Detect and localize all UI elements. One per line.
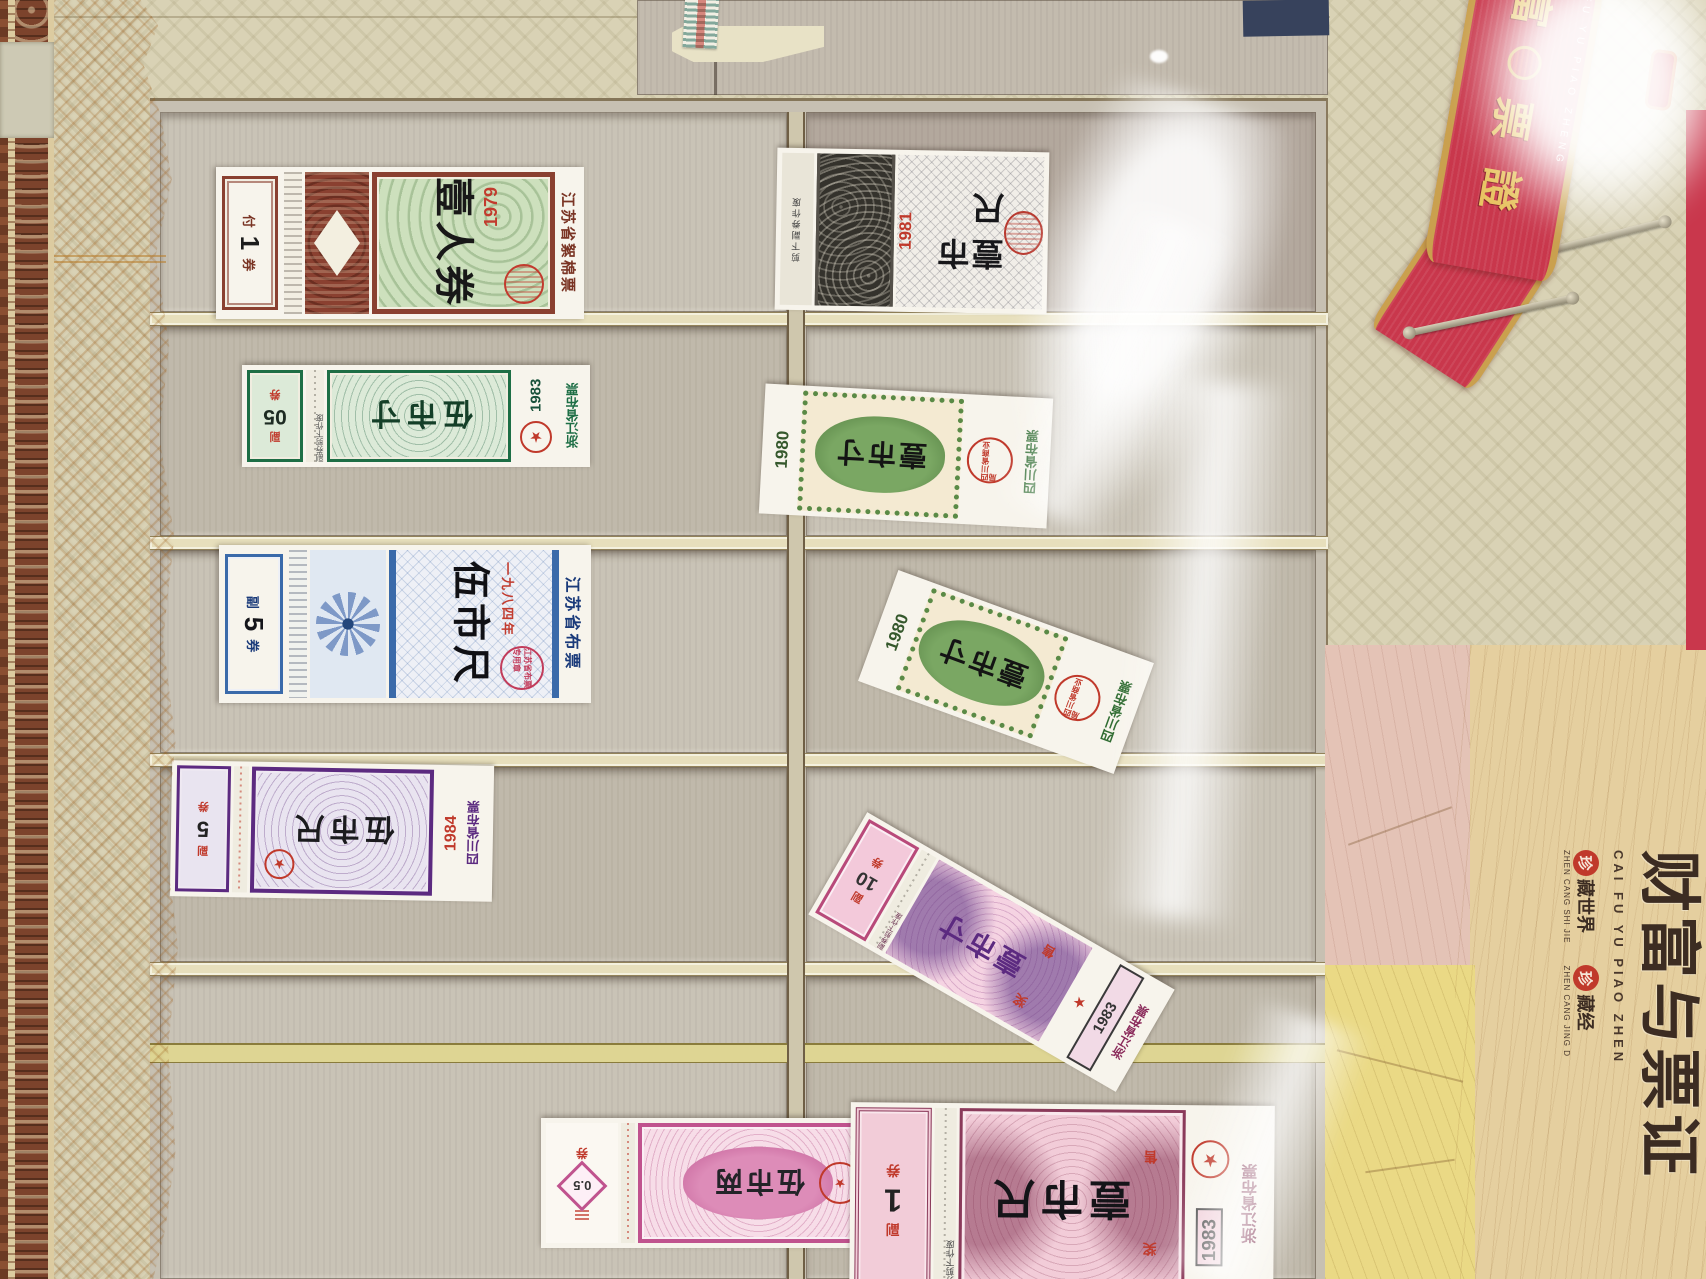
banner-character-top: 富 <box>1501 0 1568 32</box>
stub-prefix: 副 <box>270 429 281 445</box>
coupon-stub: 副 5 券 <box>225 554 283 694</box>
coupon-body: 奖 售 壹市尺 <box>958 1108 1186 1279</box>
coupon-denomination: 壹人券 <box>428 177 486 309</box>
coupon-jiangsu-cotton-1979: 江苏省絮棉票 1979 壹人券 付 1 券 <box>216 167 584 319</box>
red-seal-icon <box>1003 211 1043 256</box>
stub-prefix: 副 <box>197 843 208 859</box>
coupon-year: 1983 <box>529 379 544 412</box>
coupon-issuer: 四川省布票 <box>1024 430 1040 496</box>
coupon-denomination: 伍市寸 <box>365 394 473 438</box>
fine-print-strip: 副券剪下作废 <box>933 1108 957 1279</box>
extra-top: 奖 <box>1009 990 1030 1013</box>
coupon-issuer: 江苏省絮棉票 <box>558 172 579 314</box>
engraved-band <box>310 550 386 698</box>
coupon-year: 1980 <box>773 430 792 469</box>
reward-sale-characters: 奖 售 <box>1143 1147 1158 1259</box>
seal-text: 四川省商业局 <box>1063 676 1092 721</box>
stub-value: 1 <box>884 1182 902 1219</box>
cover-title-latin: CAI FU YU PIAO ZHEN <box>1611 850 1626 1065</box>
coupon-stub: 剪下副券作废 <box>780 153 815 306</box>
seal-column: 四川省商业局 <box>961 399 1019 522</box>
coupon-year: 1981 <box>897 212 915 250</box>
stub-value: 05 <box>263 404 286 428</box>
green-medallion: 壹市寸 <box>814 413 948 496</box>
coupon-issuer: 浙江省布票 <box>1244 1164 1261 1244</box>
collect-latin: ZHEN CANG JING D <box>1562 965 1571 1057</box>
coupon-body: 壹市尺 1981 <box>896 155 1045 310</box>
red-seal-icon: 四川省商业局 <box>1048 669 1107 728</box>
engraved-band <box>815 153 896 306</box>
border-ornate-band <box>15 0 48 1279</box>
stub-value: 1 <box>235 236 266 250</box>
coupon-issuer-column: 四川省布票 <box>1016 402 1048 523</box>
collect-text: 藏经 <box>1573 994 1599 1030</box>
coupon-denomination: 壹市尺 <box>913 185 1004 279</box>
coupon-year: 1983 <box>1091 1000 1121 1036</box>
coupon-body: 伍市寸 <box>327 370 511 462</box>
map-region-pink <box>1325 645 1470 975</box>
coupon-denomination: 壹市寸 <box>932 629 1033 698</box>
coupon-issuer-column: 浙江省布票 <box>561 370 585 462</box>
stub-prefix: 付 <box>241 215 260 228</box>
red-seal-icon: 江苏省布票专用章 <box>500 646 544 690</box>
seal-text: 四川省商业局 <box>981 439 999 482</box>
coupon-year: 1984 <box>443 815 460 851</box>
coupon-body: 江苏省布票专用章 一九八四年 伍市尺 <box>389 550 559 698</box>
coupon-issuer-column: 浙江省布票 <box>1234 1111 1270 1279</box>
ration-coupon-album-photo: 江苏省絮棉票 1979 壹人券 付 1 券 壹市尺 1981 <box>0 0 1706 1279</box>
banner-character-2: 票 <box>1481 94 1548 146</box>
stub-diamond: 0.5 <box>557 1161 608 1212</box>
stub-suffix: 券 <box>270 387 281 403</box>
pink-medallion: 伍市两 <box>684 1147 834 1219</box>
collect-badge: 珍 藏经 ZHEN CANG JING D <box>1562 965 1599 1057</box>
coupon-issuer: 江苏省布票 <box>562 550 586 698</box>
coupon-stub: 副 1 券 <box>854 1107 932 1279</box>
torn-paper-crease <box>54 255 166 263</box>
collect-latin: ZHEN CANG SHI JIE <box>1562 850 1571 943</box>
coupon-stub: 付 1 券 <box>222 176 278 310</box>
map-region-yellow <box>1325 965 1475 1279</box>
coupon-denomination: 壹市寸 <box>833 432 928 477</box>
year-column: 1980 <box>764 389 800 510</box>
red-seal-icon: 珍 <box>1573 965 1599 991</box>
red-ribbon-edge <box>1686 110 1706 650</box>
stub-value: 0.5 <box>573 1179 591 1194</box>
stub-prefix: 副 <box>245 596 264 609</box>
extra-top: 奖 <box>1143 1239 1157 1259</box>
border-stripe-outer <box>0 0 8 1279</box>
seal-year-column: 1983 ★ <box>1187 1110 1233 1279</box>
fine-print-strip <box>232 766 249 892</box>
coupon-denomination: 壹市寸 <box>928 904 1031 987</box>
engraved-band <box>305 172 369 314</box>
red-seal-icon: 珍 <box>1573 850 1599 876</box>
sleeve-separator-4 <box>150 962 1328 976</box>
banner-character-3: 證 <box>1469 163 1536 215</box>
coupon-body: ★ 伍市尺 <box>250 767 434 896</box>
fine-print-strip <box>289 550 307 698</box>
border-stripe-cream <box>8 0 15 1279</box>
coupon-jiangsu-1984-5chi: 江苏省布票 江苏省布票专用章 一九八四年 伍市尺 副 5 券 <box>219 545 591 703</box>
fine-print-strip: 副券剪下作废 <box>306 370 324 462</box>
star-seal-icon: ★ <box>264 849 295 880</box>
flower-motif <box>316 592 380 656</box>
star-seal-icon: ★ <box>520 421 552 453</box>
seal-year-column: ★ 1983 <box>514 370 558 462</box>
coupon-zhejiang-1983-5cun: 浙江省布票 ★ 1983 伍市寸 副券剪下作废 副 05 券 <box>242 365 590 467</box>
extra-bottom: 售 <box>1038 941 1059 964</box>
coupon-issuer: 浙江省布票 <box>567 384 580 449</box>
fine-print-strip <box>621 1123 635 1243</box>
coupon-stub: 副 5 券 <box>175 765 231 892</box>
coupon-denomination: 伍市两 <box>712 1163 805 1203</box>
coupon-year: 1980 <box>883 612 912 653</box>
fine-print-strip <box>284 172 302 314</box>
coupon-sichuan-1984-5chi: 四川省布票 1984 ★ 伍市尺 副 5 券 <box>170 760 494 902</box>
extra-bottom: 售 <box>1143 1147 1157 1167</box>
cover-title: 财富与票证 <box>1630 850 1706 1180</box>
green-medallion: 壹市寸 <box>908 605 1056 721</box>
coupon-zhejiang-1983-1chi: 浙江省布票 1983 ★ 奖 售 壹市尺 副券剪下作废 副 1 <box>849 1102 1275 1279</box>
stub-note: 副券剪下作废 <box>946 1240 955 1279</box>
collect-badges: 珍 藏世界 ZHEN CANG SHI JIE 珍 藏经 ZHEN CANG J… <box>1562 850 1599 1057</box>
coupon-denomination: 伍市尺 <box>447 561 502 687</box>
coupon-body: 壹市寸 <box>797 391 964 519</box>
torn-orange-paper <box>54 0 178 1279</box>
partial-coupon-peek <box>683 0 720 49</box>
stub-suffix: 券 <box>241 258 260 271</box>
coupon-year: 1983 <box>1200 1219 1219 1261</box>
star-seal-icon: ★ <box>1191 1140 1229 1178</box>
coupon-body: ★ 伍市两 <box>638 1123 879 1243</box>
coupon-stub: 0.5 券 <box>546 1123 618 1243</box>
coupon-gray-1981: 壹市尺 1981 剪下副券作废 <box>775 148 1050 315</box>
stub-suffix: 券 <box>198 799 209 815</box>
stub-note: 剪下副券作废 <box>792 196 802 262</box>
issuer-year-column: 四川省布票 1984 <box>435 770 489 897</box>
stub-prefix: 副 <box>886 1220 900 1240</box>
stub-value: 5 <box>197 816 210 842</box>
border-stripe-cream-2 <box>48 0 54 1279</box>
seal-text: 江苏省布票专用章 <box>511 648 533 688</box>
border-gap-patch <box>0 42 54 138</box>
sleeve-edge-band <box>150 1043 1328 1063</box>
stub-suffix: 券 <box>886 1161 900 1181</box>
red-seal-icon: 四川省商业局 <box>966 436 1014 484</box>
coupon-denomination: 伍市尺 <box>289 808 395 854</box>
stub-value: 5 <box>239 617 270 631</box>
red-mark <box>575 1211 589 1221</box>
coupon-denomination: 壹市尺 <box>987 1171 1132 1233</box>
collect-text: 藏世界 <box>1573 879 1599 933</box>
gold-seal-icon <box>1505 43 1544 82</box>
coupon-sichuan-1980-a: 四川省布票 四川省商业局 壹市寸 1980 <box>759 384 1053 529</box>
year-box: 1983 <box>1196 1209 1223 1267</box>
cover-title-block: 财富与票证 CAI FU YU PIAO ZHEN 珍 藏世界 ZHEN CAN… <box>1520 850 1706 1250</box>
coupon-body: 1979 壹人券 <box>372 172 555 314</box>
stub-suffix: 券 <box>245 639 264 652</box>
coupon-issuer: 四川省布票 <box>467 801 481 866</box>
red-seal-icon <box>504 264 544 304</box>
diamond-motif <box>314 210 360 276</box>
coupon-stub: 副 05 券 <box>247 370 303 462</box>
stub-note: 副券剪下作废 <box>316 414 324 462</box>
dark-item-top-right <box>1243 0 1330 37</box>
coupon-year-text: 一九八四年 <box>499 562 518 637</box>
collect-badge: 珍 藏世界 ZHEN CANG SHI JIE <box>1562 850 1599 943</box>
